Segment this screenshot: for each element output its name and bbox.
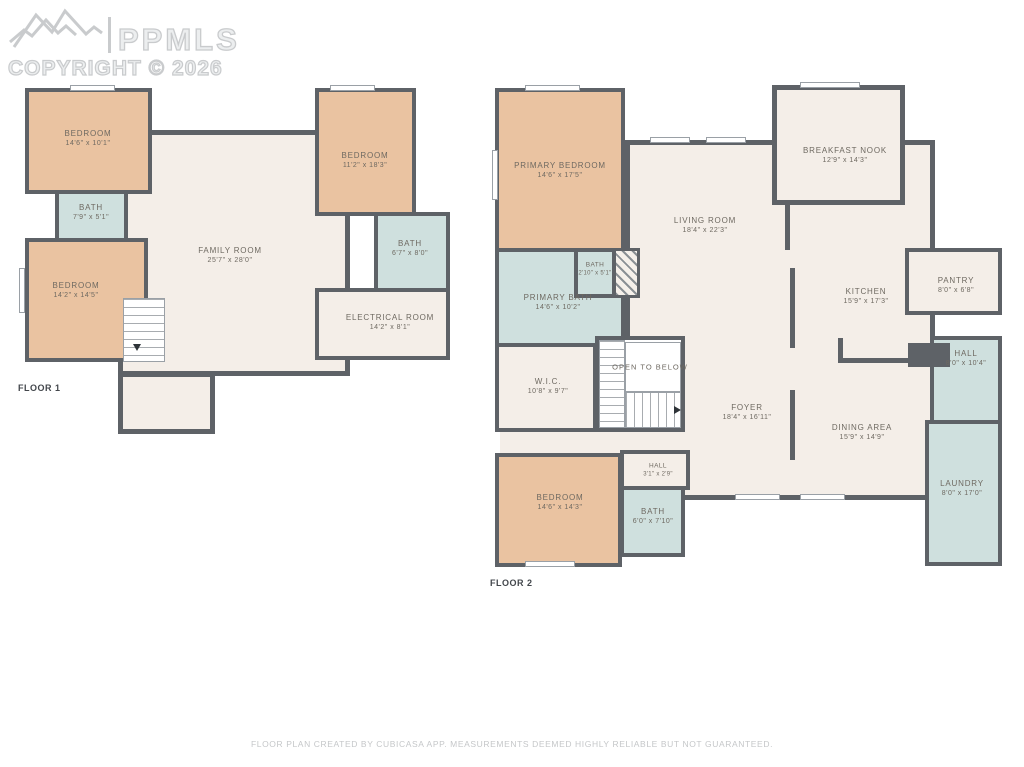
floor2-living-room-label: LIVING ROOM 18'4" x 22'3" xyxy=(674,216,736,234)
floor1-staircase xyxy=(123,298,165,362)
floor-plan-canvas: PPMLS COPYRIGHT © 2026 BEDROOM 14'6" x 1… xyxy=(0,0,1024,767)
floor1-bottom-extension xyxy=(118,372,215,434)
floor2-breakfast-nook-area xyxy=(772,85,905,205)
interior-wall xyxy=(785,205,790,250)
watermark: PPMLS COPYRIGHT © 2026 xyxy=(8,6,240,80)
floor2-primary-bedroom-label: PRIMARY BEDROOM 14'6" x 17'5" xyxy=(514,161,606,179)
floor2-hall-patch-left xyxy=(500,428,600,456)
window-marker xyxy=(800,494,845,500)
floor2-laundry-label: LAUNDRY 8'0" x 17'0" xyxy=(940,479,984,497)
floor2-stairs-arrow-icon xyxy=(674,406,681,414)
window-marker xyxy=(525,85,580,91)
watermark-brand: PPMLS xyxy=(118,24,240,55)
window-marker xyxy=(330,85,375,91)
floor1-electrical-room-label: ELECTRICAL ROOM 14'2" x 8'1" xyxy=(346,313,434,331)
floor2-primary-bath-label: PRIMARY BATH 14'6" x 10'2" xyxy=(524,293,593,311)
floor2-pantry-label: PANTRY 8'0" x 6'8" xyxy=(938,276,975,294)
floor2-breakfast-nook-label: BREAKFAST NOOK 12'9" x 14'3" xyxy=(803,146,887,164)
floor1-bath-right-label: BATH 6'7" x 8'0" xyxy=(392,239,428,257)
footer-disclaimer: FLOOR PLAN CREATED BY CUBICASA APP. MEAS… xyxy=(0,739,1024,749)
watermark-divider xyxy=(108,17,111,53)
floor2-hall-small-label: HALL 3'1" x 2'9" xyxy=(643,463,673,478)
floor2-open-to-below-label: OPEN TO BELOW xyxy=(612,363,688,372)
window-marker xyxy=(800,82,860,88)
floor1-bedroom-top-right-label: BEDROOM 11'2" x 18'3" xyxy=(342,151,389,169)
interior-wall xyxy=(838,358,910,363)
floor2-bath-bottom-label: BATH 6'0" x 7'10" xyxy=(633,507,674,525)
interior-wall xyxy=(908,343,950,367)
floor1-stairs-down-arrow-icon xyxy=(133,344,141,351)
floor2-staircase-lower xyxy=(625,392,681,428)
floor1-bedroom-top-left-label: BEDROOM 14'6" x 10'1" xyxy=(65,129,112,147)
window-marker xyxy=(70,85,115,91)
ppmls-mountain-logo-icon xyxy=(8,6,104,55)
floor2-kitchen-label: KITCHEN 15'9" x 17'3" xyxy=(844,287,889,305)
interior-wall xyxy=(790,268,795,348)
floor2-stair-hatch xyxy=(613,248,640,298)
floor2-wic-label: W.I.C. 10'8" x 9'7" xyxy=(528,377,569,395)
floor2-tag: FLOOR 2 xyxy=(490,578,533,588)
floor2-staircase-upper xyxy=(599,340,625,428)
window-marker xyxy=(735,494,780,500)
watermark-copyright: COPYRIGHT © 2026 xyxy=(8,57,240,80)
window-marker xyxy=(706,137,746,143)
window-marker xyxy=(650,137,690,143)
floor1-bath-left-label: BATH 7'9" x 5'1" xyxy=(73,203,109,221)
interior-wall xyxy=(790,390,795,460)
window-marker xyxy=(492,150,498,200)
floor1-family-room-label: FAMILY ROOM 25'7" x 28'0" xyxy=(198,246,262,264)
floor2-bedroom-bottom-label: BEDROOM 14'6" x 14'3" xyxy=(537,493,584,511)
floor2-dining-area-label: DINING AREA 15'9" x 14'9" xyxy=(832,423,892,441)
floor1-tag: FLOOR 1 xyxy=(18,383,61,393)
floor2-small-bath-label: BATH 2'10" x 5'1" xyxy=(578,262,611,277)
floor2-foyer-label: FOYER 18'4" x 16'11" xyxy=(723,403,772,421)
window-marker xyxy=(19,268,25,313)
floor1-bedroom-bottom-left-label: BEDROOM 14'2" x 14'5" xyxy=(53,281,100,299)
floor2-hall-right-label: HALL 8'0" x 10'4" xyxy=(946,349,987,367)
window-marker xyxy=(525,561,575,567)
